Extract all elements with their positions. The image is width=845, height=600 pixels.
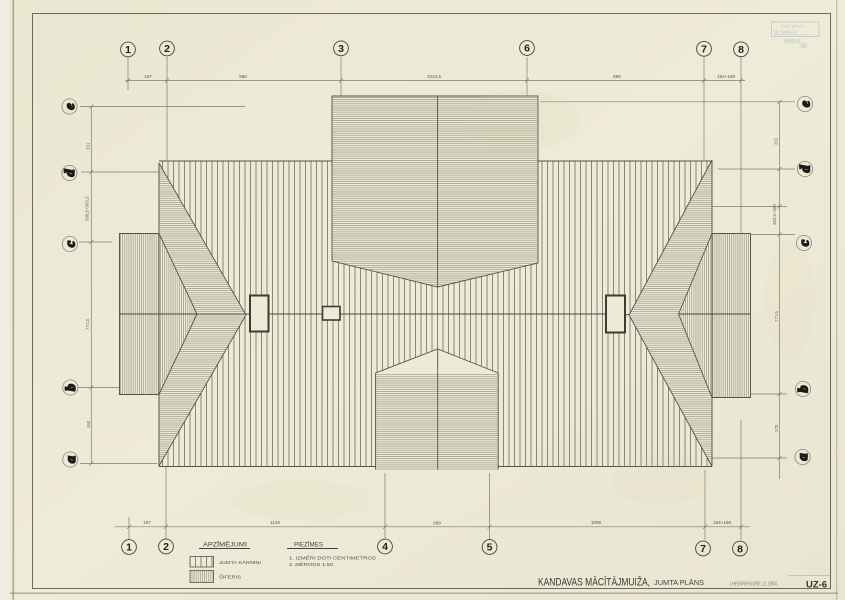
svg-text:1: 1: [125, 44, 131, 56]
svg-text:303,5+380: 303,5+380: [772, 204, 777, 225]
svg-text:Valsts arhīvs: Valsts arhīvs: [780, 24, 803, 29]
svg-text:b: b: [64, 384, 79, 391]
svg-text:7: 7: [700, 543, 706, 555]
svg-text:I.HEINRIHSONE 11.1984.: I.HEINRIHSONE 11.1984.: [730, 582, 778, 588]
svg-text:999: 999: [433, 521, 441, 526]
svg-text:5493/14: 5493/14: [784, 38, 801, 43]
svg-text:197: 197: [143, 520, 151, 525]
svg-text:7: 7: [701, 44, 707, 56]
svg-text:390,5+303,5: 390,5+303,5: [85, 196, 90, 221]
svg-text:2: 2: [164, 43, 170, 55]
svg-text:e: e: [799, 101, 814, 107]
svg-text:e: e: [63, 103, 78, 109]
svg-text:a: a: [64, 456, 79, 463]
svg-text:Nr. 5493-IV: Nr. 5493-IV: [774, 30, 798, 35]
svg-text:2. MĒROGS 1:50: 2. MĒROGS 1:50: [289, 561, 333, 568]
svg-text:8: 8: [737, 543, 743, 555]
svg-text:PIEZĪMES: PIEZĪMES: [294, 541, 324, 549]
svg-text:6: 6: [524, 43, 530, 55]
svg-text:986: 986: [239, 74, 247, 79]
svg-text:APZĪMĒJUMI: APZĪMĒJUMI: [203, 541, 247, 549]
svg-text:197: 197: [144, 74, 152, 79]
svg-text:JUMTA PLĀNS: JUMTA PLĀNS: [654, 579, 704, 587]
svg-text:895: 895: [613, 74, 621, 79]
svg-text:3: 3: [338, 43, 344, 55]
svg-text:771,5: 771,5: [85, 318, 90, 330]
svg-text:8: 8: [738, 44, 744, 56]
svg-text:331: 331: [774, 137, 779, 145]
svg-text:c: c: [63, 240, 78, 247]
svg-text:4: 4: [382, 541, 388, 553]
svg-text:KANDAVAS MĀCĪTĀJMUIŽA,: KANDAVAS MĀCĪTĀJMUIŽA,: [538, 576, 650, 589]
svg-text:5: 5: [487, 542, 493, 554]
svg-text:2: 2: [163, 541, 169, 553]
svg-text:1103: 1103: [270, 520, 280, 525]
svg-text:UZ-6: UZ-6: [806, 580, 827, 591]
svg-text:1099: 1099: [591, 520, 602, 525]
svg-text:/95: /95: [799, 44, 807, 50]
svg-text:JUMTA KĀRNIŅI: JUMTA KĀRNIŅI: [219, 559, 261, 566]
svg-text:360: 360: [86, 420, 91, 428]
svg-text:1: 1: [126, 542, 132, 554]
svg-text:370: 370: [774, 424, 779, 432]
svg-text:b: b: [797, 386, 812, 393]
svg-text:1. IZMĒRI DOTI CENTIMETROS: 1. IZMĒRI DOTI CENTIMETROS: [289, 555, 376, 562]
svg-text:ŠĪFERIS: ŠĪFERIS: [219, 574, 241, 581]
svg-text:a: a: [796, 454, 811, 461]
svg-text:194+196: 194+196: [713, 520, 731, 525]
svg-text:194+196: 194+196: [717, 74, 735, 79]
svg-text:331: 331: [86, 142, 91, 150]
svg-text:d: d: [63, 169, 78, 177]
svg-text:1044,5: 1044,5: [427, 74, 441, 79]
svg-text:d: d: [799, 165, 814, 173]
